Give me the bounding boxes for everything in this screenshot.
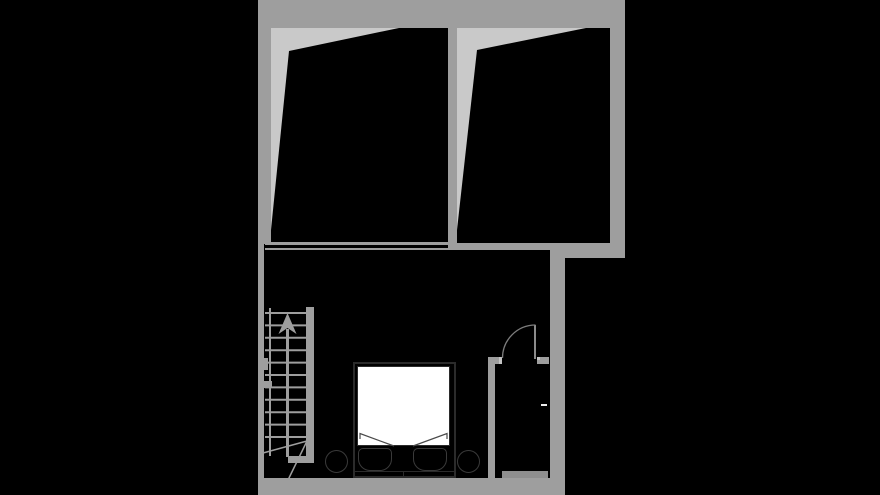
bed-duvet [357, 366, 450, 446]
up-arrow-icon [279, 313, 297, 334]
pillow-right [413, 448, 447, 471]
headboard-divider [403, 471, 405, 478]
attic-room-left [271, 28, 448, 242]
door-handle-tick [541, 404, 547, 407]
pillow-left [358, 448, 392, 471]
stair-wall-foot [288, 456, 314, 463]
knee-wall-line-lower [265, 248, 448, 251]
wall-tab-handrail-1 [263, 358, 268, 370]
knee-wall-line-upper [265, 242, 448, 245]
attic-room-right [457, 28, 610, 243]
wall-top [258, 0, 625, 28]
bed-headboard [353, 471, 456, 478]
wall-left-upper [258, 0, 271, 244]
door-leaf [534, 325, 536, 359]
closet-wall-left [488, 357, 495, 478]
door-jamb-left-cap [499, 357, 502, 364]
wall-right-upper [610, 0, 625, 258]
closet-threshold [502, 471, 548, 478]
wall-divider [448, 28, 457, 250]
winder-line-1 [263, 441, 307, 453]
wall-right-lower [550, 241, 565, 495]
stair-wall [306, 307, 314, 463]
stool-right [457, 450, 480, 473]
wall-tab-handrail-2 [263, 381, 272, 388]
wall-band [448, 243, 550, 250]
door-swing-arc [503, 325, 536, 358]
floor-plan [0, 0, 880, 495]
stool-left [325, 450, 348, 473]
stair-walk-line [286, 329, 289, 457]
door-jamb-right-cap [537, 357, 540, 360]
wall-bottom [258, 478, 565, 495]
